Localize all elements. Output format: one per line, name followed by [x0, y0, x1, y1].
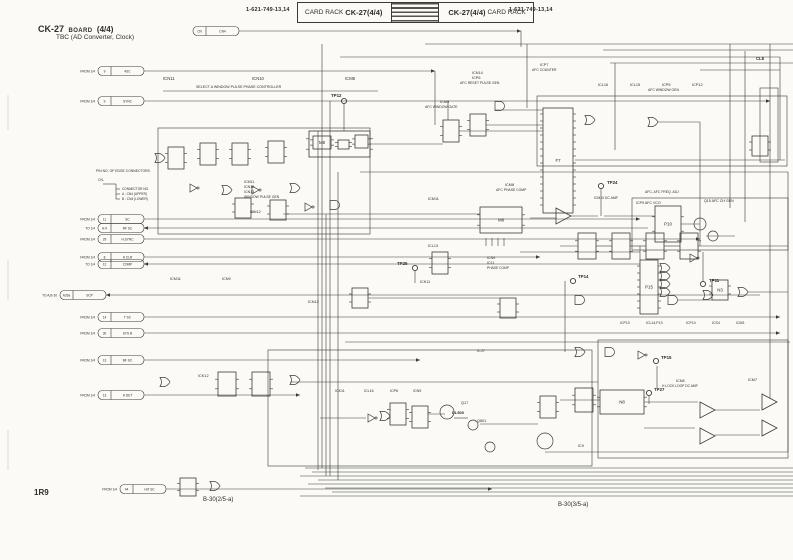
schematic-canvas: M8F7M8P10P15N3N8TP12TP25TP24TP11TP14TP15… [0, 0, 793, 560]
schematic-label: 9 [104, 99, 106, 103]
logic-gate-or-icon [648, 118, 658, 127]
schematic-label: FROM 1/4 [80, 69, 95, 73]
schematic-label: BF SC [123, 358, 133, 362]
ic-block [168, 147, 184, 169]
schematic-label: IC11 [487, 261, 494, 265]
schematic-label: 44 [125, 487, 129, 491]
schematic-label: 13 [103, 358, 107, 362]
ic-block [540, 396, 556, 418]
wire-arrowhead-icon [776, 331, 780, 335]
schematic-label: ICM9 [440, 100, 449, 104]
schematic-label: CN [197, 29, 202, 33]
logic-gate-inv-icon [305, 203, 312, 211]
wire-arrowhead-icon [431, 69, 435, 73]
schematic-label: TO 1/4 [85, 226, 95, 230]
schematic-label: PIN NO. OF EDGE CONNECTORS [96, 169, 151, 173]
schematic-label: Q17 [461, 401, 468, 405]
schematic-label: 9 [104, 69, 106, 73]
schematic-label: 4SC [124, 69, 131, 73]
schematic-label: ICL15 [630, 83, 640, 87]
schematic-label: H/2 SC [144, 487, 155, 491]
schematic-label: ICP14 [686, 321, 696, 325]
schematic-label: ICN14 [472, 71, 483, 75]
schematic-label: F7 [555, 158, 561, 163]
schematic-label: 14 [103, 315, 107, 319]
wire-arrowhead-icon [636, 217, 640, 221]
logic-gate-or-icon [160, 378, 170, 387]
schematic-label: TP12 [331, 93, 342, 98]
opamp-icon [700, 428, 715, 444]
schematic-label: ICP9 AFC VCO [636, 201, 661, 205]
wire-arrowhead-icon [536, 255, 540, 259]
schematic-label: 8 [104, 255, 106, 259]
ic-block [355, 135, 368, 148]
wire-arrowhead-icon [776, 315, 780, 319]
schematic-label: N3 [717, 288, 723, 293]
schematic-label: M8 [498, 218, 505, 223]
test-point [570, 278, 575, 283]
schematic-label: SELECT A WINDOW PULSE PHASE CONTROLLER [196, 85, 282, 89]
schematic-label: PHASE COMP [487, 266, 510, 270]
schematic-label: IC9 [578, 444, 584, 448]
schematic-label: CONNECTOR NO. [122, 187, 149, 191]
ic-block [218, 372, 236, 396]
schematic-label: ICM11 [428, 197, 439, 201]
logic-gate-or-icon [660, 264, 670, 273]
schematic-label: ICN9 [487, 256, 495, 260]
opamp-icon [700, 402, 715, 418]
schematic-label: ICL16 [598, 83, 608, 87]
schematic-label: FROM 1/4 [80, 315, 95, 319]
logic-gate-or-icon [155, 154, 165, 163]
schematic-label: TO A,B-30 [42, 293, 57, 297]
logic-gate-or-icon [290, 184, 300, 193]
schematic-label: SCP [86, 293, 93, 297]
schematic-label: 30 [103, 331, 107, 335]
ic-block [352, 288, 368, 308]
schematic-label: TP24 [607, 180, 618, 185]
schematic-label: 13 [103, 393, 107, 397]
ic-block [432, 252, 448, 274]
schematic-label: P15 [645, 285, 653, 290]
schematic-label: TO 1/4 [85, 262, 95, 266]
schematic-label: AFC PHASE COMP [496, 188, 527, 192]
ic-block [680, 233, 698, 259]
schematic-label: TP25 [397, 261, 408, 266]
schematic-label: M8 [319, 140, 326, 145]
opamp-icon [762, 420, 777, 436]
schematic-label: FROM 1/4 [80, 255, 95, 259]
logic-gate-or-icon [290, 376, 300, 385]
ic-block [268, 141, 284, 163]
schematic-label: AFC COUNTER [532, 68, 557, 72]
schematic-label: CN4 [219, 29, 226, 33]
schematic-label: FROM 1/4 [80, 393, 95, 397]
schematic-label: ICM10 DC AMP [594, 196, 619, 200]
wire-arrowhead-icon [144, 262, 148, 266]
schematic-label: TP15 [661, 355, 672, 360]
schematic-label: SC [125, 217, 130, 221]
page-ref: 1R9 [34, 488, 49, 497]
schematic-label: ICM7 [748, 378, 757, 382]
schematic-label: A-9 [102, 226, 107, 230]
schematic-label: SYS B [123, 331, 132, 335]
schematic-label: RF SC [123, 226, 133, 230]
logic-gate-and-icon [668, 296, 678, 305]
schematic-label: 29 [103, 237, 107, 241]
ic-block [232, 143, 248, 165]
logic-gate-and-icon [605, 348, 615, 357]
schematic-label: ICN8 [676, 379, 685, 383]
section-box [537, 96, 787, 166]
transistor-icon [537, 433, 553, 449]
sheet-ref-right: B-30(3/5-a) [558, 502, 588, 508]
ic-block [338, 140, 349, 149]
schematic-label: ICN12 [308, 300, 319, 304]
ic-block [270, 200, 286, 220]
schematic-label: ICN10 [252, 76, 265, 81]
schematic-label: ICN12 [250, 210, 261, 214]
schematic-label: T SC [124, 315, 132, 319]
schematic-page: 1-621-749-13,14 CARD RACKCK-27(4/4) CK-2… [0, 0, 793, 560]
ic-block [500, 298, 516, 318]
schematic-label: ICN11 [163, 76, 175, 81]
logic-gate-and-icon [575, 296, 585, 305]
logic-gate-or-icon [222, 186, 232, 195]
schematic-label: ICN10 [244, 185, 254, 189]
schematic-label: H LOCK LOOP DC AMP [662, 384, 699, 388]
schematic-label: H CLR [123, 255, 133, 259]
schematic-label: ICL16 [364, 389, 374, 393]
logic-gate-or-icon [660, 280, 670, 289]
logic-gate-or-icon [660, 272, 670, 281]
transistor-icon [485, 442, 495, 452]
schematic-label: FROM 1/4 [80, 217, 95, 221]
schematic-label: SYNC [123, 99, 133, 103]
schematic-label: 12 [103, 262, 107, 266]
schematic-label: DL500 [452, 410, 465, 415]
opamp-icon [556, 208, 571, 224]
schematic-label: CN- [98, 178, 104, 182]
test-point [412, 265, 417, 270]
schematic-label: ICJ7 [477, 349, 485, 353]
logic-gate-or-icon [585, 116, 595, 125]
schematic-label: TP14 [578, 274, 589, 279]
schematic-label: ICM11 [244, 180, 254, 184]
schematic-label: ICP13 [620, 321, 630, 325]
logic-gate-inv-icon [638, 351, 645, 359]
schematic-label: 11 [103, 217, 107, 221]
schematic-label: AFC, AFC FREQ. ADJ [645, 190, 679, 194]
ic-block [412, 406, 428, 428]
schematic-label: FROM 1/4 [102, 487, 117, 491]
schematic-label: ICM8 [505, 183, 514, 187]
logic-gate-inv-icon [368, 414, 375, 422]
section-box [760, 88, 778, 162]
schematic-label: TP11 [709, 278, 720, 283]
schematic-label: H DET [123, 393, 133, 397]
wire-arrowhead-icon [416, 358, 420, 362]
wire-arrowhead-icon [766, 99, 770, 103]
schematic-label: AFC WINDOW GEN [648, 88, 679, 92]
schematic-label: AFC RESET PULSE GEN [460, 81, 500, 85]
logic-gate-or-icon [575, 348, 585, 357]
wire-arrowhead-icon [144, 226, 148, 230]
schematic-label: ICP7 [540, 63, 548, 67]
schematic-label: A29a [63, 293, 71, 297]
ic-block [443, 120, 459, 142]
schematic-label: ICP6 [390, 389, 398, 393]
schematic-label: ICK12 [198, 374, 209, 378]
logic-gate-inv-icon [690, 254, 697, 262]
schematic-label: B : CN4 (LOWER) [122, 197, 148, 201]
schematic-label: ICK11 [420, 280, 430, 284]
test-point [598, 183, 603, 188]
ic-block [200, 143, 216, 165]
schematic-label: Q15 AFC CH GEN [704, 199, 734, 203]
schematic-label: WINDOW PULSE GEN [244, 195, 280, 199]
schematic-label: ICK11 [335, 389, 345, 393]
schematic-label: P10 [664, 222, 672, 227]
ic-block [235, 198, 251, 218]
schematic-label: FROM 1/4 [80, 237, 95, 241]
ic-block [578, 233, 596, 259]
opamp-icon [762, 394, 777, 410]
schematic-label: FROM 1/4 [80, 358, 95, 362]
schematic-label: ICN9 [413, 389, 421, 393]
schematic-label: ICM8 [345, 76, 356, 81]
schematic-label: FROM 1/4 [80, 331, 95, 335]
ic-block [470, 114, 486, 136]
schematic-label: AFC WINDOW GATE [425, 105, 458, 109]
logic-gate-and-icon [495, 102, 505, 111]
schematic-label: ICM3 [736, 321, 744, 325]
section-box [598, 340, 788, 458]
schematic-label: CL8 [756, 56, 765, 61]
ic-block [390, 403, 406, 425]
sheet-ref-left: B-30(2/5-a) [203, 497, 233, 503]
schematic-label: ICN13 [244, 190, 254, 194]
schematic-label: ICN9 [222, 277, 231, 281]
ic-block [252, 372, 270, 396]
schematic-label: H.SYNC [121, 237, 134, 241]
schematic-label: ICS4 [712, 321, 720, 325]
schematic-label: ICL13 [428, 244, 438, 248]
ic-block [180, 478, 196, 496]
schematic-label: ICM11 [170, 277, 181, 281]
schematic-label: N8 [619, 400, 625, 405]
ic-block [612, 233, 630, 259]
schematic-label: ICL14,P13 [646, 321, 663, 325]
schematic-label: A : CN4 (UPPER) [122, 192, 147, 196]
schematic-label: ICP6 [472, 76, 480, 80]
wire-arrowhead-icon [517, 29, 521, 33]
schematic-label: ICP12 [692, 83, 703, 87]
schematic-label: COMP [123, 262, 133, 266]
wire-arrowhead-icon [106, 293, 110, 297]
test-point [700, 281, 705, 286]
test-point [646, 390, 651, 395]
schematic-label: Q801 [477, 419, 486, 423]
logic-gate-or-icon [380, 412, 390, 421]
schematic-label: FROM 1/4 [80, 99, 95, 103]
wire-arrowhead-icon [296, 393, 300, 397]
logic-gate-inv-icon [190, 184, 197, 192]
schematic-label: ICP5 [662, 83, 670, 87]
test-point [653, 358, 658, 363]
